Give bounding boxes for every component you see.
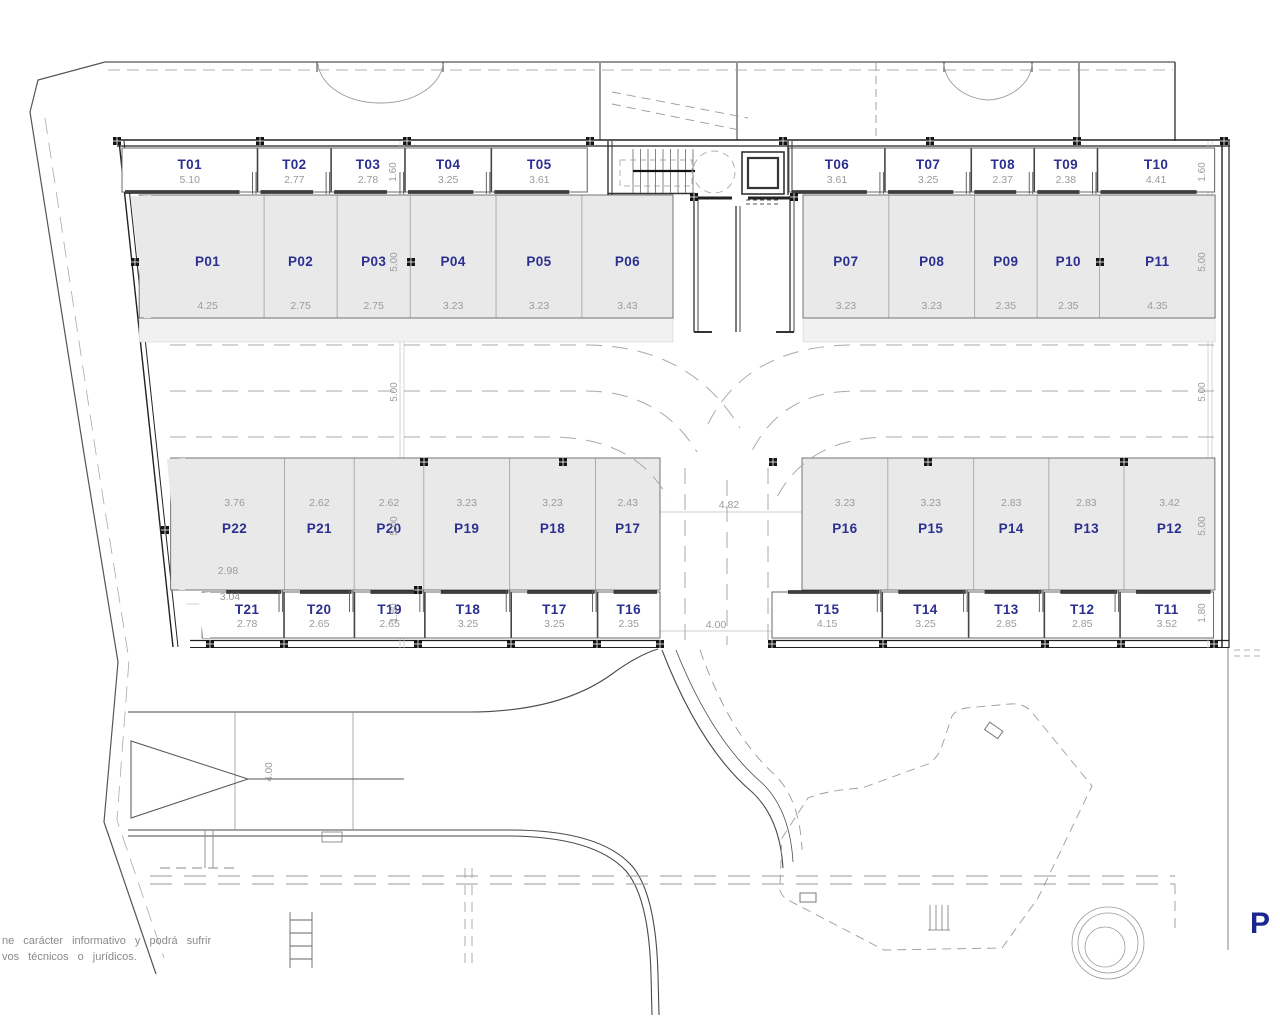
column-icon [161,526,169,534]
stall-label: P19 [454,521,479,536]
column-icon [414,640,422,648]
bench-icon [800,893,816,902]
stall-width-dim: 3.23 [456,497,477,509]
stall-width-dim: 2.83 [1076,497,1097,509]
stall-label: T14 [913,602,938,617]
stall-label: T09 [1054,157,1078,172]
stall-width-dim: 3.23 [835,497,856,509]
stall-P09: P092.35 [975,195,1037,318]
stall-width-dim: 3.25 [544,618,565,630]
stall-label: P10 [1056,254,1081,269]
column-icon [1120,458,1128,466]
column-icon [769,458,777,466]
stall-P07: P073.23 [803,195,889,318]
stall-T17: T173.25 [506,590,597,638]
column-icon [768,640,776,648]
stall-width-dim: 3.23 [443,300,464,312]
stall-P15: P153.23 [888,458,974,590]
dim-aisle-width-left: 5.00 [389,382,400,402]
stall-label: P02 [288,254,313,269]
stall-P19: P193.23 [424,458,510,590]
stall-label: T15 [815,602,840,617]
stall-label: P06 [615,254,640,269]
ladder-icon [290,912,312,968]
stall-width-dim: 2.35 [996,300,1017,312]
stall-width-dim: 3.23 [922,300,943,312]
stall-T05: T053.61 [486,148,587,194]
stall-label: T11 [1155,602,1179,617]
stall-P14: P142.83 [974,458,1049,590]
stall-T16: T162.35 [593,590,660,638]
dim-parking-depth2-right: 5.00 [1197,516,1208,536]
dim-parking-depth-left: 5.00 [389,252,400,272]
parking-apron [139,318,673,342]
stall-width-dim: 3.43 [617,300,638,312]
dim-p22-outer: 3.04 [220,591,241,603]
column-icon [1096,258,1104,266]
column-icon [926,137,934,145]
column-icon [1117,640,1125,648]
stall-label: P11 [1145,254,1170,269]
stall-label: P07 [833,254,858,269]
stall-width-dim: 2.35 [619,618,640,630]
stall-width-dim: 2.83 [1001,497,1022,509]
column-icon [593,640,601,648]
stall-T18: T183.25 [420,590,511,638]
stall-P17: P172.43 [595,458,660,590]
stall-width-dim: 4.35 [1147,300,1168,312]
stair-dashed-outline [620,160,692,186]
plan-title-letter: P [1250,907,1270,940]
column-icon [206,640,214,648]
column-icon [1073,137,1081,145]
grate-icon [928,905,950,930]
stall-label: P14 [999,521,1024,536]
stall-label: P01 [195,254,220,269]
stall-label: P18 [540,521,565,536]
floor-plan-drawing: T015.10T022.77T032.78T043.25T053.61T063.… [0,0,1280,1024]
ramp-roads [128,649,793,1015]
stall-west-infill [198,592,210,638]
stall-label: T06 [825,157,850,172]
dim-bottom-storage-right: 1.80 [1197,603,1208,623]
column-icon [256,137,264,145]
stall-T19: T192.65 [349,590,424,638]
column-icon [924,458,932,466]
stall-width-dim: 2.85 [1072,618,1093,630]
stall-width-dim: 2.78 [358,174,379,186]
stall-width-dim: 2.62 [379,497,400,509]
stall-T13: T132.85 [964,590,1045,638]
stall-width-dim: 4.41 [1146,174,1167,186]
stall-width-dim: 3.61 [529,174,550,186]
stall-label: T12 [1070,602,1094,617]
stall-T04: T043.25 [400,148,491,194]
stall-width-dim: 2.35 [1058,300,1079,312]
stall-width-dim: 4.15 [817,618,838,630]
column-icon [1041,640,1049,648]
stall-P18: P183.23 [510,458,596,590]
stall-label: T02 [282,157,306,172]
disclaimer-line-2: vos técnicos o jurídicos. [2,951,137,963]
stall-width-dim: 3.52 [1157,618,1178,630]
column-icon [779,137,787,145]
stall-width-dim: 2.38 [1056,174,1077,186]
stall-label: T01 [178,157,203,172]
stall-width-dim: 2.43 [617,497,638,509]
stall-label: P13 [1074,521,1099,536]
column-icon [1220,137,1228,145]
upper-ramp-dashed [612,92,748,131]
stall-width-dim: 2.78 [237,618,258,630]
stall-label: T18 [456,602,481,617]
stall-label: T08 [991,157,1016,172]
floor-plan-canvas: T015.10T022.77T032.78T043.25T053.61T063.… [0,0,1280,1024]
bench-icon [985,722,1003,739]
column-icon [879,640,887,648]
stall-T20: T202.65 [279,590,354,638]
stall-T01: T015.10 [122,148,258,192]
parking-apron [803,318,1215,342]
stall-label: P12 [1157,521,1182,536]
stall-label: T17 [542,602,566,617]
dim-parking-depth2-left: 5.00 [389,516,400,536]
site-context [150,648,1262,979]
column-icon [420,458,428,466]
column-icon [507,640,515,648]
stall-width-dim: 2.62 [309,497,330,509]
stall-label: T21 [235,602,260,617]
dim-p22-inner: 2.98 [218,565,239,577]
column-icon [656,640,664,648]
stall-label: P08 [919,254,944,269]
stall-width-dim: 2.75 [290,300,311,312]
column-icon [414,586,422,594]
stall-width-dim: 3.25 [915,618,936,630]
dim-aisle-width-right: 5.00 [1197,382,1208,402]
stall-width-dim: 3.23 [836,300,857,312]
stall-label: T03 [356,157,381,172]
dim-parking-depth-right: 5.00 [1197,252,1208,272]
column-icon [280,640,288,648]
column-icon [690,193,698,201]
stall-width-dim: 5.10 [180,174,201,186]
stall-label: P21 [307,521,332,536]
stall-label: P17 [615,521,640,536]
column-icon [131,258,139,266]
stall-T14: T143.25 [877,590,968,638]
stall-width-dim: 2.85 [996,618,1017,630]
stall-label: T07 [916,157,940,172]
stall-width-dim: 4.25 [197,300,218,312]
stall-label: T20 [307,602,331,617]
dim-top-storage-depth-right: 1.60 [1197,162,1208,182]
stall-width-dim: 3.61 [827,174,848,186]
entry-door-right [944,64,1032,100]
stall-width-dim: 2.75 [363,300,384,312]
stall-width-dim: 2.77 [284,174,305,186]
north-annex [105,62,1175,141]
stall-width-dim: 3.25 [458,618,479,630]
dim-ramp-width: 4.00 [264,762,275,782]
stall-P06: P063.43 [582,195,673,318]
column-icon [1210,640,1218,648]
stall-label: T04 [436,157,461,172]
turning-circle [693,151,735,193]
column-icon [790,193,798,201]
stall-label: P03 [361,254,386,269]
column-icon [407,258,415,266]
stall-P21: P212.62 [285,458,355,590]
stall-T12: T122.85 [1039,590,1120,638]
stall-label: T13 [994,602,1019,617]
stall-P04: P043.23 [410,195,496,318]
stall-width-dim: 3.42 [1159,497,1180,509]
column-icon [586,137,594,145]
lobby-corridor [694,196,794,332]
stall-label: P04 [441,254,466,269]
stall-label: T16 [617,602,642,617]
stall-label: P09 [993,254,1018,269]
stall-P01: P014.25 [139,195,264,318]
stall-label: T10 [1144,157,1168,172]
stall-width-dim: 2.37 [993,174,1014,186]
stall-T21: T212.78 [202,592,284,638]
dim-top-storage-depth-left: 1.60 [388,162,399,182]
stall-label: P16 [832,521,857,536]
spa-circle [1072,907,1144,979]
stall-label: P15 [918,521,943,536]
stall-T15: T154.15 [772,592,882,638]
stall-T08: T082.37 [966,148,1034,194]
dim-center-gap: 4.82 [719,499,740,511]
stall-P08: P083.23 [889,195,975,318]
dim-bottom-storage-left: 1.80 [389,603,400,623]
stall-T07: T073.25 [880,148,971,194]
stall-T02: T022.77 [253,148,332,194]
stall-width-dim: 3.23 [921,497,942,509]
dim-center-gap-south: 4.00 [706,619,727,631]
stall-label: P22 [222,521,247,536]
stall-T06: T063.61 [789,148,885,192]
stall-width-dim: 2.65 [309,618,330,630]
stall-P02: P022.75 [264,195,337,318]
column-icon [403,137,411,145]
ramp-guide-dashed [700,650,802,850]
stall-P10: P102.35 [1037,195,1099,318]
stall-P16: P163.23 [802,458,888,590]
stall-width-dim: 3.25 [918,174,939,186]
stall-width-dim: 3.76 [224,497,245,509]
stall-width-dim: 3.25 [438,174,459,186]
stall-label: P05 [526,254,551,269]
column-icon [559,458,567,466]
column-icon [113,137,121,145]
stall-P13: P132.83 [1049,458,1124,590]
stall-label: T05 [527,157,552,172]
stall-width-dim: 3.23 [542,497,563,509]
disclaimer-line-1: ne carácter informativo y podrá sufrir [2,935,211,947]
stall-T09: T092.38 [1029,148,1097,194]
stall-width-dim: 3.23 [529,300,550,312]
stall-P05: P053.23 [496,195,582,318]
